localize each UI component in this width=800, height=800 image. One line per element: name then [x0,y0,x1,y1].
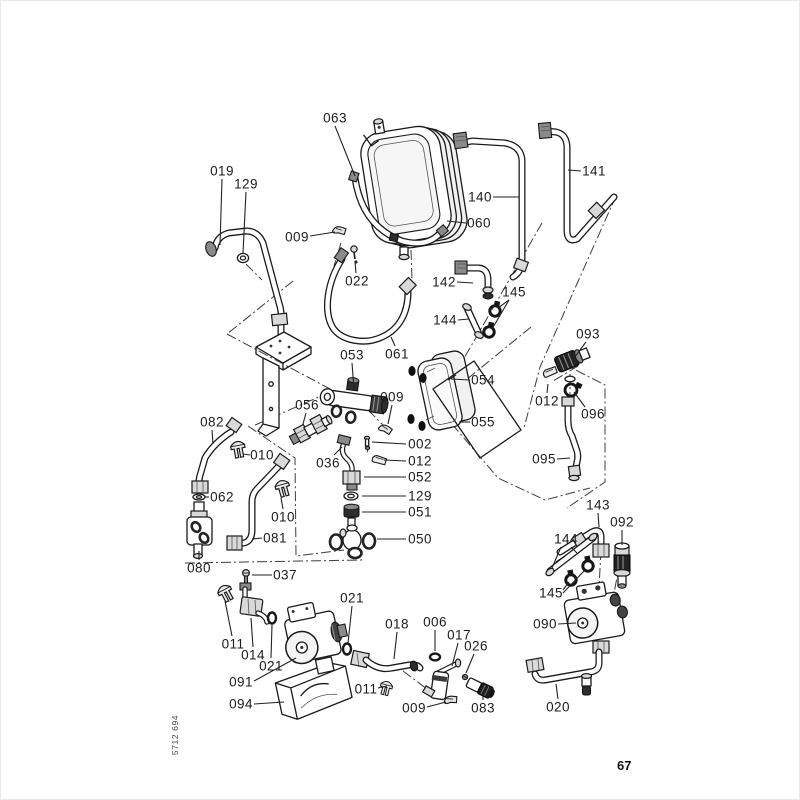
hose-144-upper [462,302,485,339]
pump-090 [562,579,632,653]
screw-037 [243,570,250,584]
leader-line-021 [348,606,352,643]
leader-line-010 [243,454,250,455]
washer-129-top [237,253,248,262]
leader-line-061 [391,337,395,346]
nut-051 [344,504,359,517]
exploded-parts-drawing [0,0,800,800]
hose-095 [562,397,581,481]
oring-021-right [343,644,351,655]
valve-050 [330,518,375,558]
hose-036 [337,435,352,471]
pump-091 [277,597,351,667]
oring-006 [430,654,440,661]
clip-011-left [216,583,236,604]
clip-010-b [274,479,292,498]
mounting-bracket [256,332,311,436]
pipe-141 [538,123,614,240]
washer-129-mid [344,492,358,500]
pipe-082 [192,417,242,493]
pipe-018 [351,650,420,671]
clip-009-top [332,226,346,235]
clip-009-center [378,423,393,435]
elbow-014 [240,583,267,622]
leader-line-096 [574,392,585,407]
valve-017 [423,659,461,700]
leader-line-012 [384,460,406,461]
clip-010-a [230,440,247,458]
pipe-019 [204,231,288,341]
clip-012-right [542,365,558,379]
leader-line-095 [557,458,570,459]
washer-062 [193,494,205,500]
injector-002 [364,436,369,453]
clamp-145-a [487,300,503,318]
clamp-096 [565,382,583,396]
leader-line-063 [335,126,355,176]
pipe-020 [526,652,599,695]
expansion-vessel [349,108,471,260]
oring-021-left [268,613,276,624]
leader-line-014 [251,618,253,647]
leader-line-010 [281,498,283,509]
leader-line-082 [212,430,213,444]
page-number: 67 [617,758,631,773]
leader-line-144 [458,319,469,320]
fitting-056 [287,411,334,446]
leader-line-142 [457,282,473,283]
leader-line-129 [243,192,246,253]
washer-093 [565,376,575,382]
elbow-142 [455,261,493,299]
screw-022 [351,246,358,264]
leader-line-012 [547,384,548,393]
heat-exchanger-054 [407,349,477,432]
valve-080 [187,502,212,558]
parts-diagram-page: 0630191290090221400601411421451440610530… [0,0,800,800]
leader-line-056 [303,413,306,424]
leader-line-009 [310,232,335,236]
pipe-081 [227,453,290,550]
screw-026 [462,674,467,679]
leader-line-020 [556,684,558,699]
leader-line-018 [394,632,397,659]
sensor-083 [465,677,496,700]
clip-011-mid [379,680,394,696]
document-code: 5712 694 [170,715,180,755]
leader-line-026 [466,654,474,673]
fitting-052 [343,471,360,490]
leader-line-021 [271,625,272,658]
leader-line-002 [372,442,406,444]
leader-line-009 [427,702,446,707]
leader-line-009 [388,405,392,424]
leader-line-011 [225,601,232,636]
hose-061 [327,248,416,341]
leader-line-143 [598,513,599,527]
